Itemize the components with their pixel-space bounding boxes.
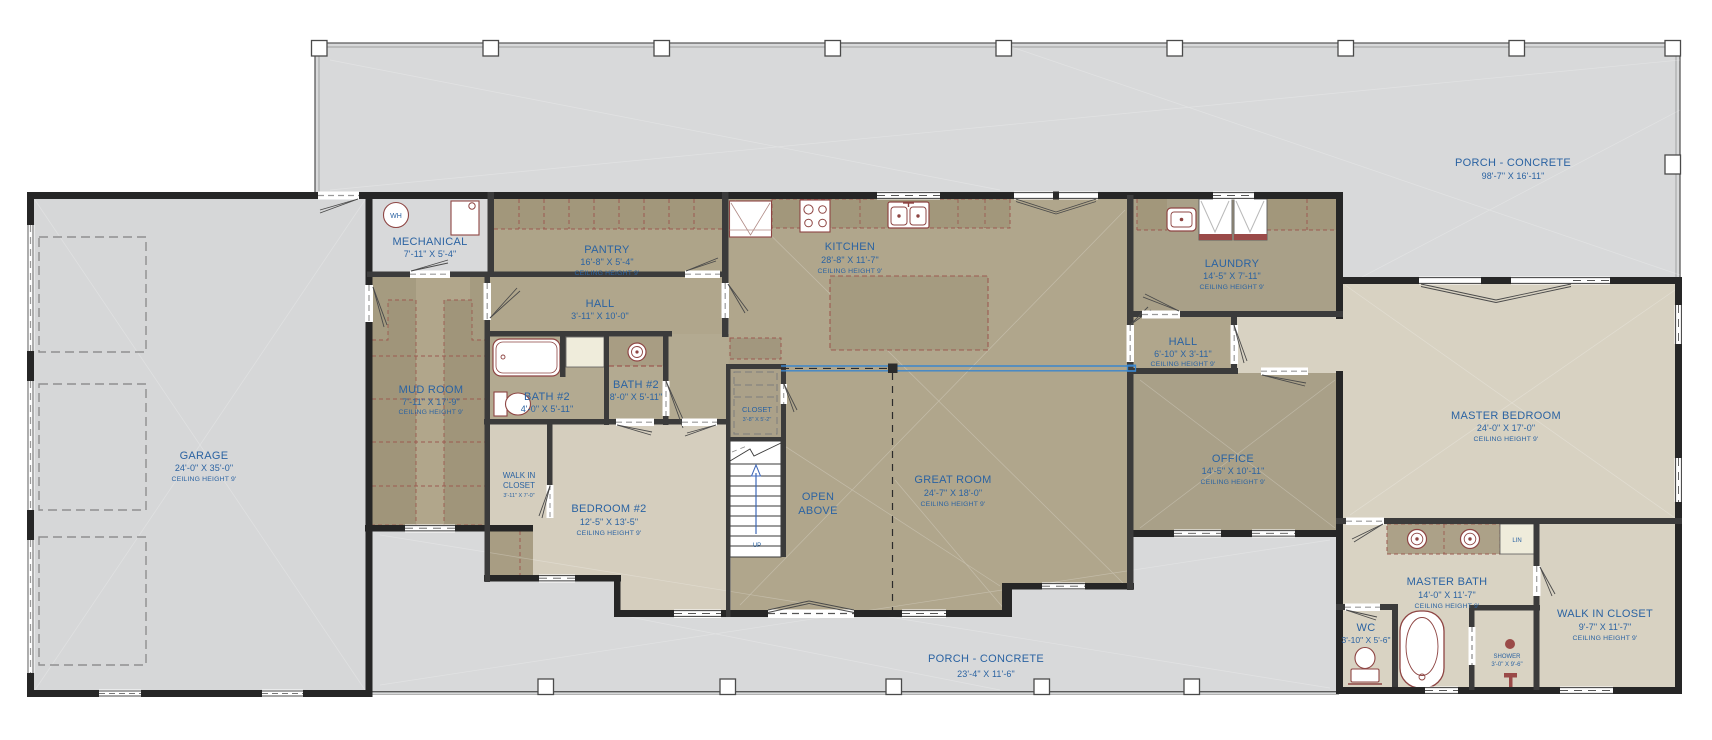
svg-text:CEILING HEIGHT 9': CEILING HEIGHT 9' xyxy=(398,409,463,416)
svg-text:PORCH - CONCRETE: PORCH - CONCRETE xyxy=(1455,157,1571,169)
svg-text:CEILING HEIGHT 9': CEILING HEIGHT 9' xyxy=(1199,284,1264,291)
svg-text:4'-0" X 5'-11": 4'-0" X 5'-11" xyxy=(521,404,574,414)
svg-text:CEILING HEIGHT 9': CEILING HEIGHT 9' xyxy=(576,530,641,537)
svg-text:WC: WC xyxy=(1357,622,1376,634)
svg-text:14'-0" X 11'-7": 14'-0" X 11'-7" xyxy=(1418,590,1476,600)
svg-text:SHOWER: SHOWER xyxy=(1494,654,1522,660)
svg-text:MASTER BATH: MASTER BATH xyxy=(1407,576,1488,588)
svg-text:CEILING HEIGHT 9': CEILING HEIGHT 9' xyxy=(171,476,236,483)
svg-text:KITCHEN: KITCHEN xyxy=(825,241,875,253)
svg-text:BATH #2: BATH #2 xyxy=(613,379,659,391)
svg-text:24'-0" X 17'-0": 24'-0" X 17'-0" xyxy=(1477,423,1535,433)
svg-text:3'-8" X 5'-2": 3'-8" X 5'-2" xyxy=(743,417,772,423)
svg-text:HALL: HALL xyxy=(1169,336,1198,348)
svg-text:CEILING HEIGHT 9': CEILING HEIGHT 9' xyxy=(1473,436,1538,443)
svg-text:PORCH - CONCRETE: PORCH - CONCRETE xyxy=(928,653,1044,665)
svg-text:3'-11" X 10'-0": 3'-11" X 10'-0" xyxy=(571,311,629,321)
svg-text:WALK IN: WALK IN xyxy=(503,471,536,480)
svg-text:23'-4" X 11'-6": 23'-4" X 11'-6" xyxy=(957,669,1015,679)
svg-text:PANTRY: PANTRY xyxy=(584,244,630,256)
svg-text:HALL: HALL xyxy=(586,298,615,310)
svg-text:CEILING HEIGHT 9': CEILING HEIGHT 9' xyxy=(1572,635,1637,642)
svg-text:14'-5" X 10'-11": 14'-5" X 10'-11" xyxy=(1202,466,1265,476)
svg-text:9'-7" X 11'-7": 9'-7" X 11'-7" xyxy=(1579,622,1632,632)
svg-text:ABOVE: ABOVE xyxy=(798,505,837,517)
svg-text:7'-11" X 17'-9": 7'-11" X 17'-9" xyxy=(402,397,460,407)
svg-text:16'-8" X 5'-4": 16'-8" X 5'-4" xyxy=(580,257,633,267)
svg-text:CEILING HEIGHT 9': CEILING HEIGHT 9' xyxy=(574,270,639,277)
svg-text:3'-10" X 5'-6": 3'-10" X 5'-6" xyxy=(1342,635,1391,645)
svg-text:GREAT ROOM: GREAT ROOM xyxy=(914,474,991,486)
svg-text:24'-7" X 18'-0": 24'-7" X 18'-0" xyxy=(924,488,982,498)
svg-text:CEILING HEIGHT 9': CEILING HEIGHT 9' xyxy=(1200,479,1265,486)
svg-text:CEILING HEIGHT 9': CEILING HEIGHT 9' xyxy=(920,501,985,508)
svg-text:3'-11" X 7'-0": 3'-11" X 7'-0" xyxy=(503,493,534,499)
svg-text:98'-7" X 16'-11": 98'-7" X 16'-11" xyxy=(1482,171,1545,181)
svg-text:OPEN: OPEN xyxy=(802,491,834,503)
svg-text:MUD ROOM: MUD ROOM xyxy=(399,384,464,396)
svg-text:MASTER BEDROOM: MASTER BEDROOM xyxy=(1451,410,1561,422)
svg-text:BEDROOM #2: BEDROOM #2 xyxy=(571,503,646,515)
svg-text:CLOSET: CLOSET xyxy=(742,405,772,414)
svg-text:CEILING HEIGHT 9': CEILING HEIGHT 9' xyxy=(1414,603,1479,610)
svg-text:MECHANICAL: MECHANICAL xyxy=(392,236,467,248)
svg-text:8'-0" X 5'-11": 8'-0" X 5'-11" xyxy=(610,392,663,402)
svg-text:12'-5" X 13'-5": 12'-5" X 13'-5" xyxy=(580,517,638,527)
svg-text:14'-5" X 7'-11": 14'-5" X 7'-11" xyxy=(1203,271,1261,281)
svg-text:7'-11" X 5'-4": 7'-11" X 5'-4" xyxy=(404,249,457,259)
svg-text:24'-0" X 35'-0": 24'-0" X 35'-0" xyxy=(175,463,233,473)
svg-text:GARAGE: GARAGE xyxy=(180,450,229,462)
svg-text:3'-0" X 9'-6": 3'-0" X 9'-6" xyxy=(1491,662,1522,668)
svg-text:LIN: LIN xyxy=(1512,538,1521,544)
svg-text:WH: WH xyxy=(390,213,402,220)
svg-text:BATH #2: BATH #2 xyxy=(524,391,570,403)
svg-text:WALK IN CLOSET: WALK IN CLOSET xyxy=(1557,608,1653,620)
svg-text:UP: UP xyxy=(753,543,761,549)
svg-text:CEILING HEIGHT 9': CEILING HEIGHT 9' xyxy=(817,268,882,275)
svg-text:CEILING HEIGHT 9': CEILING HEIGHT 9' xyxy=(1150,361,1215,368)
svg-text:LAUNDRY: LAUNDRY xyxy=(1205,258,1260,270)
svg-text:28'-8" X 11'-7": 28'-8" X 11'-7" xyxy=(821,255,879,265)
svg-text:6'-10" X 3'-11": 6'-10" X 3'-11" xyxy=(1154,349,1212,359)
svg-text:OFFICE: OFFICE xyxy=(1212,453,1254,465)
svg-text:CLOSET: CLOSET xyxy=(503,481,535,490)
